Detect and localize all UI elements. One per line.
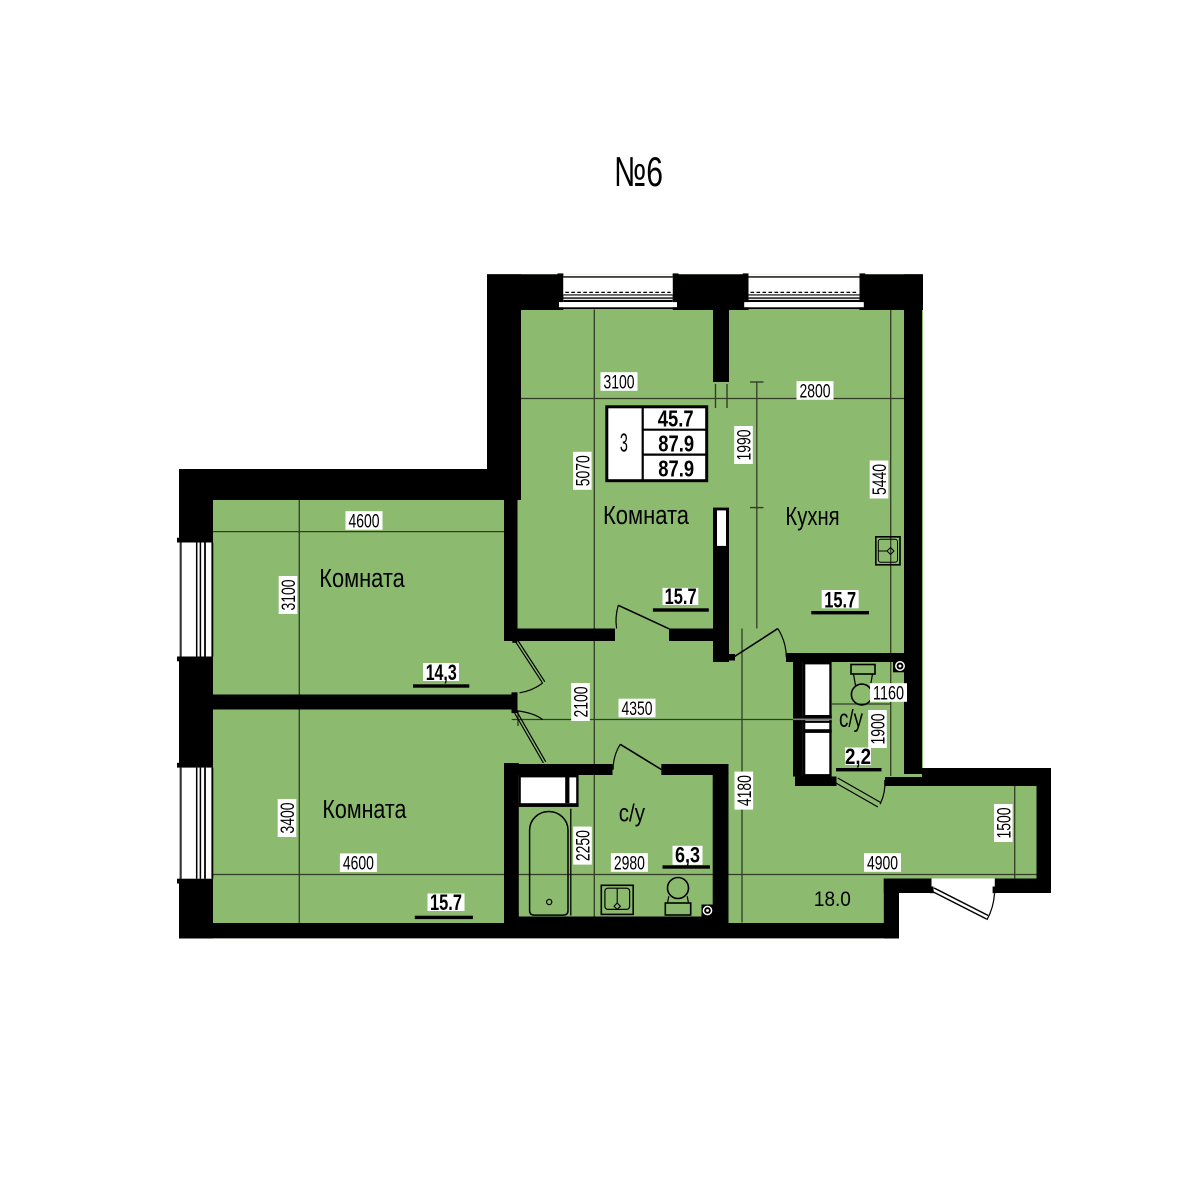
svg-text:3400: 3400 bbox=[277, 802, 299, 833]
svg-text:2,2: 2,2 bbox=[845, 744, 871, 769]
svg-text:с/у: с/у bbox=[619, 800, 646, 828]
svg-text:15.7: 15.7 bbox=[430, 890, 462, 915]
svg-text:5070: 5070 bbox=[572, 455, 594, 486]
svg-text:4350: 4350 bbox=[622, 698, 653, 720]
svg-text:87.9: 87.9 bbox=[658, 431, 694, 457]
svg-text:1160: 1160 bbox=[873, 683, 904, 705]
svg-text:15.7: 15.7 bbox=[824, 588, 856, 613]
svg-text:4900: 4900 bbox=[867, 853, 898, 875]
svg-text:14,3: 14,3 bbox=[426, 660, 457, 685]
svg-text:5440: 5440 bbox=[869, 464, 891, 495]
svg-text:с/у: с/у bbox=[839, 705, 863, 733]
svg-text:6,3: 6,3 bbox=[675, 843, 700, 868]
svg-text:3100: 3100 bbox=[604, 372, 635, 394]
svg-text:3100: 3100 bbox=[278, 579, 300, 610]
svg-text:№6: №6 bbox=[614, 148, 663, 195]
svg-text:3: 3 bbox=[620, 429, 628, 457]
svg-text:2980: 2980 bbox=[614, 853, 645, 875]
svg-text:15.7: 15.7 bbox=[665, 584, 697, 609]
svg-text:2100: 2100 bbox=[571, 686, 593, 717]
svg-text:Комната: Комната bbox=[319, 565, 405, 593]
svg-text:Комната: Комната bbox=[603, 502, 690, 530]
svg-text:4600: 4600 bbox=[343, 853, 374, 875]
svg-text:2250: 2250 bbox=[573, 830, 595, 861]
svg-text:87.9: 87.9 bbox=[658, 456, 694, 482]
svg-text:Кухня: Кухня bbox=[785, 503, 839, 531]
svg-text:Комната: Комната bbox=[322, 796, 407, 824]
svg-text:1900: 1900 bbox=[868, 713, 890, 744]
svg-text:4180: 4180 bbox=[734, 775, 756, 806]
svg-text:4600: 4600 bbox=[349, 511, 380, 533]
svg-text:45.7: 45.7 bbox=[658, 405, 694, 431]
svg-text:18.0: 18.0 bbox=[814, 887, 851, 911]
svg-text:1500: 1500 bbox=[993, 807, 1015, 838]
svg-text:1990: 1990 bbox=[734, 429, 756, 460]
svg-text:2800: 2800 bbox=[800, 381, 831, 403]
